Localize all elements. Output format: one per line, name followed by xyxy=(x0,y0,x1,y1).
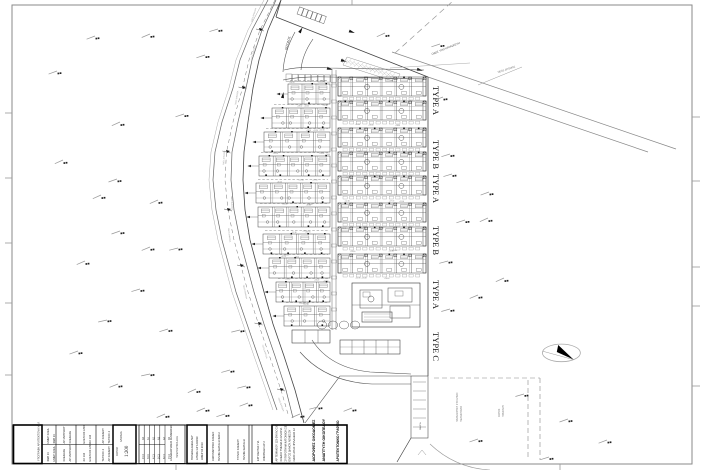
svg-text:ΕΛΕΓΧΟΣ ΑΠΟ: ΕΛΕΓΧΟΣ ΑΠΟ xyxy=(82,425,86,443)
svg-text:+13.00: +13.00 xyxy=(302,231,307,233)
svg-text:5/13: 5/13 xyxy=(158,454,161,459)
svg-text:ΗΜΕΡ ΣΧΕΔ: ΗΜΕΡ ΣΧΕΔ xyxy=(52,446,56,461)
svg-text:+16.40: +16.40 xyxy=(282,204,287,206)
svg-text:ΗΜΕΡΟΜΗΝΙΑ ΕΚΔ: ΗΜΕΡΟΜΗΝΙΑ ΕΚΔ xyxy=(176,436,179,458)
svg-text:ΑΡ ΤΕΜΑΧΙΟΥ 123 ΦΥΛΛΟ ΣΧ: ΑΡ ΤΕΜΑΧΙΟΥ 123 ΦΥΛΛΟ ΣΧ xyxy=(275,425,279,461)
svg-text:+12.80: +12.80 xyxy=(285,279,290,281)
svg-text:+19.90: +19.90 xyxy=(312,180,317,182)
svg-text:6/13: 6/13 xyxy=(163,454,166,459)
svg-text:ΧΩΡΟΣ: ΧΩΡΟΣ xyxy=(498,408,501,417)
svg-text:ΗΜΕΡ 04 2013: ΗΜΕΡ 04 2013 xyxy=(200,442,204,460)
svg-text:ΟΔΟΣ ΔΗΜΟΣΙΑ: ΟΔΟΣ ΔΗΜΟΣΙΑ xyxy=(242,285,248,300)
svg-text:+15.10: +15.10 xyxy=(273,153,278,155)
svg-text:+16.20: +16.20 xyxy=(361,278,366,280)
svg-text:ΟΔΟΣ ΔΗΜΟΣΙΑ: ΟΔΟΣ ΔΗΜΟΣΙΑ xyxy=(222,150,226,165)
svg-text:ΟΔΟΣ ΑΓΙΑΣ ΦΥΛΑΞΕΩΣ 12: ΟΔΟΣ ΑΓΙΑΣ ΦΥΛΑΞΕΩΣ 12 xyxy=(292,428,296,462)
svg-text:+10.30: +10.30 xyxy=(389,250,394,252)
svg-text:ΧΩΡΟΜΕΤΡΙΚΟ ΣΧΕΔΙΟ: ΧΩΡΟΜΕΤΡΙΚΟ ΣΧΕΔΙΟ xyxy=(211,432,215,461)
svg-text:1:200: 1:200 xyxy=(125,445,130,457)
svg-text:Α0: Α0 xyxy=(142,436,145,440)
svg-text:Α4: Α4 xyxy=(163,436,166,440)
svg-text:+14.00: +14.00 xyxy=(304,105,309,107)
svg-text:ΡΑΜΠΑ: ΡΑΜΠΑ xyxy=(419,422,422,430)
svg-text:TYPE A: TYPE A xyxy=(431,86,441,116)
svg-text:ΟΔΟΣ ΔΗΜΟΣΙΑ: ΟΔΟΣ ΔΗΜΟΣΙΑ xyxy=(250,7,258,22)
svg-text:+16.20: +16.20 xyxy=(277,181,282,183)
svg-text:ΣΧΕΔΙΑΣΕ: ΣΧΕΔΙΑΣΕ xyxy=(68,431,72,444)
svg-text:ΑΝΑΘΕΩΡΗΣΕΙΣ ΣΗΜΕΙΩΣΕΙΣ: ΑΝΑΘΕΩΡΗΣΕΙΣ ΣΗΜΕΙΩΣΕΙΣ xyxy=(169,424,173,461)
svg-text:Α3: Α3 xyxy=(158,436,161,440)
svg-text:+13.60: +13.60 xyxy=(350,251,355,253)
svg-text:3/13: 3/13 xyxy=(147,454,150,459)
svg-text:+18.60: +18.60 xyxy=(306,130,311,132)
svg-text:ΟΔΟΣ ΔΗΜΟΣΙΑ: ΟΔΟΣ ΔΗΜΟΣΙΑ xyxy=(227,228,232,243)
svg-text:+11.50: +11.50 xyxy=(318,81,323,83)
svg-text:ΧΩΡΟΜ: ΧΩΡΟΜ xyxy=(116,447,119,456)
svg-text:+13.60: +13.60 xyxy=(299,180,304,182)
svg-text:ΧΧ 134: ΧΧ 134 xyxy=(82,452,86,461)
svg-text:+11.60: +11.60 xyxy=(306,205,311,207)
svg-text:+18.50: +18.50 xyxy=(297,105,302,107)
svg-text:ΦΕΒ 13: ΦΕΒ 13 xyxy=(52,434,56,444)
svg-text:+14.70: +14.70 xyxy=(303,304,308,306)
svg-text:ΠΡΑΣΙΝΟΥ: ΠΡΑΣΙΝΟΥ xyxy=(502,405,505,417)
svg-text:ΕΡΓΟΔΟΤΗΣ ΓΙΑ: ΕΡΓΟΔΟΤΗΣ ΓΙΑ xyxy=(256,441,260,461)
svg-text:+16.20: +16.20 xyxy=(314,279,319,281)
svg-text:TYPE A: TYPE A xyxy=(431,174,441,204)
svg-text:ΑΡΧΙΤΕΚΤΟΝΙΚΟ ΓΡΑΦΕΙΟ: ΑΡΧΙΤΕΚΤΟΝΙΚΟ ΓΡΑΦΕΙΟ xyxy=(336,420,340,462)
svg-text:ΟΔΟΣ ΔΗΜΟΣΙΑ: ΟΔΟΣ ΔΗΜΟΣΙΑ xyxy=(250,45,257,60)
svg-text:Α1: Α1 xyxy=(147,436,150,440)
svg-text:ΣΧΕΔΙΟ ΤΜΗΜΑ 21 ΕΝΟΡΙΑ: ΣΧΕΔΙΟ ΤΜΗΜΑ 21 ΕΝΟΡΙΑ xyxy=(279,428,283,462)
svg-text:ΚΛΙΜΑΚΑ: ΚΛΙΜΑΚΑ xyxy=(120,431,123,442)
svg-text:+16.60: +16.60 xyxy=(384,278,389,280)
svg-text:ΑΡ ΜΗΤΡΩΟΥ: ΑΡ ΜΗΤΡΩΟΥ xyxy=(62,426,66,443)
svg-text:ΠΕΖΟΔΡΟΜΙΟ: ΠΕΖΟΔΡΟΜΙΟ xyxy=(460,406,463,422)
svg-text:ΦΕΒ 13: ΦΕΒ 13 xyxy=(46,452,50,462)
svg-text:+15.60: +15.60 xyxy=(323,105,328,107)
svg-text:ΣΥΓΚΡΟΤΗΜΑ ΚΑΤΟΙΚΙΩΝ ΣΕ: ΣΥΓΚΡΟΤΗΜΑ ΚΑΤΟΙΚΙΩΝ ΣΕ xyxy=(283,425,287,461)
svg-text:ΤΕΥΧΟΣ 2: ΤΕΥΧΟΣ 2 xyxy=(107,430,111,443)
svg-text:ΠΟΛΕΟΔ ΑΔΕΙΑ ΛΕΥ: ΠΟΛΕΟΔ ΑΔΕΙΑ ΛΕΥ xyxy=(190,435,194,460)
svg-text:TYPE A: TYPE A xyxy=(431,280,441,310)
svg-text:ΑΝΑΠΤΥΞΗ ΟΙΚΟΠΕΔΟΥ: ΑΝΑΠΤΥΞΗ ΟΙΚΟΠΕΔΟΥ xyxy=(322,418,326,461)
svg-text:ΟΔΟΣ ΔΗΜΟΣΙΑ: ΟΔΟΣ ΔΗΜΟΣΙΑ xyxy=(230,196,234,211)
svg-text:+12.40: +12.40 xyxy=(345,201,350,203)
svg-text:+11.30: +11.30 xyxy=(291,232,296,234)
svg-text:ΣΧΕΔΙΑΣΕ: ΣΧΕΔΙΑΣΕ xyxy=(62,449,66,462)
svg-text:ΝΕΟΣ ΔΡΟΜΟΣ: ΝΕΟΣ ΔΡΟΜΟΣ xyxy=(497,65,516,74)
svg-text:+11.00: +11.00 xyxy=(399,201,404,203)
svg-text:+14.80: +14.80 xyxy=(283,255,288,257)
svg-text:ΟΔΟΣ ΥΠΟ ΚΑΤΑΣΚΕΥΗ: ΟΔΟΣ ΥΠΟ ΚΑΤΑΣΚΕΥΗ xyxy=(431,41,461,56)
svg-text:ΟΙΚΟΠΕΔΟ ΑΡ 2: ΟΙΚΟΠΕΔΟ ΑΡ 2 xyxy=(262,441,266,461)
svg-text:+14.40: +14.40 xyxy=(325,154,330,156)
svg-text:+11.70: +11.70 xyxy=(281,256,286,258)
svg-text:+12.30: +12.30 xyxy=(319,130,324,132)
svg-text:+13.30: +13.30 xyxy=(368,124,373,126)
svg-text:+16.90: +16.90 xyxy=(289,82,294,84)
svg-text:ΕΙΣΟΔΟΣ: ΕΙΣΟΔΟΣ xyxy=(284,36,291,50)
svg-text:ΑΙΤΗΣΗ ΑΡ 1234/13: ΑΙΤΗΣΗ ΑΡ 1234/13 xyxy=(195,436,199,460)
svg-text:ΤΕΥΧΟΣ 2: ΤΕΥΧΟΣ 2 xyxy=(101,448,105,461)
svg-text:ΕΝΤΟΣ ΔΗΜΟΥ ΛΕΜΕΣΟΥ: ΕΝΤΟΣ ΔΗΜΟΥ ΛΕΜΕΣΟΥ xyxy=(288,429,292,461)
svg-text:ΓΕΝΙΚΗ ΔΙΑΤΑΞΗ: ΓΕΝΙΚΗ ΔΙΑΤΑΞΗ xyxy=(242,439,246,460)
svg-text:ΑΡ ΜΗΤΡΩΟΥ: ΑΡ ΜΗΤΡΩΟΥ xyxy=(68,444,72,461)
svg-text:ΗΜΕΡ ΣΧΕΔ: ΗΜΕΡ ΣΧΕΔ xyxy=(46,428,50,443)
svg-text:2/13: 2/13 xyxy=(142,454,145,459)
svg-text:ΠΑΡΑΧΩΡΗΣΗ ΣΤΟ ΔΗΜΟ: ΠΑΡΑΧΩΡΗΣΗ ΣΤΟ ΔΗΜΟ xyxy=(456,392,459,422)
svg-text:+16.10: +16.10 xyxy=(294,256,299,258)
svg-text:ΓΕΝΙΚΗ ΔΙΑΤΑΞΗ ΦΑΣΗ: ΓΕΝΙΚΗ ΔΙΑΤΑΞΗ ΦΑΣΗ xyxy=(217,432,221,461)
svg-text:ΕΛΕΓΧΟΣ ΑΠΟ: ΕΛΕΓΧΟΣ ΑΠΟ xyxy=(88,443,92,461)
svg-text:+11.90: +11.90 xyxy=(355,278,360,280)
svg-text:+18.80: +18.80 xyxy=(395,125,400,127)
svg-text:ΤΙΤΛΟΣ ΣΧΕΔΙΟΥ: ΤΙΤΛΟΣ ΣΧΕΔΙΟΥ xyxy=(236,439,240,460)
svg-text:4/13: 4/13 xyxy=(152,454,155,459)
svg-text:ΔΙΩΡΟΦΕΣ ΟΙΚΟΔΟΜΕΣ: ΔΙΩΡΟΦΕΣ ΟΙΚΟΔΟΜΕΣ xyxy=(312,419,316,462)
svg-text:ΑΡ ΣΧΕΔΙΟΥ: ΑΡ ΣΧΕΔΙΟΥ xyxy=(101,428,105,444)
svg-text:+17.00: +17.00 xyxy=(369,175,374,177)
svg-text:TYPE B: TYPE B xyxy=(431,226,441,255)
svg-text:ΥΠΟΓΡΑΦΗ ΑΡΧΙΤΕΚΤΟΝΑ ΜΕΛ: ΥΠΟΓΡΑΦΗ ΑΡΧΙΤΕΚΤΟΝΑ ΜΕΛ xyxy=(37,422,41,461)
svg-text:ΟΔΟΣ ΔΗΜΟΣΙΑ: ΟΔΟΣ ΔΗΜΟΣΙΑ xyxy=(234,90,240,105)
svg-text:ΑΡ ΣΧΕΔΙΟΥ: ΑΡ ΣΧΕΔΙΟΥ xyxy=(107,446,111,462)
svg-text:ΧΧ 134: ΧΧ 134 xyxy=(88,434,92,443)
svg-text:+11.20: +11.20 xyxy=(313,130,318,132)
svg-text:Α2: Α2 xyxy=(152,436,155,440)
svg-text:+16.80: +16.80 xyxy=(319,153,324,155)
svg-text:TYPE C: TYPE C xyxy=(431,332,441,361)
svg-text:TYPE B: TYPE B xyxy=(431,140,441,169)
svg-text:+11.60: +11.60 xyxy=(323,281,328,283)
svg-text:+17.70: +17.70 xyxy=(389,201,394,203)
svg-text:ΟΔΟΣ ΔΗΜΟΣΙΑ: ΟΔΟΣ ΔΗΜΟΣΙΑ xyxy=(261,344,269,359)
svg-text:+15.90: +15.90 xyxy=(355,124,360,126)
